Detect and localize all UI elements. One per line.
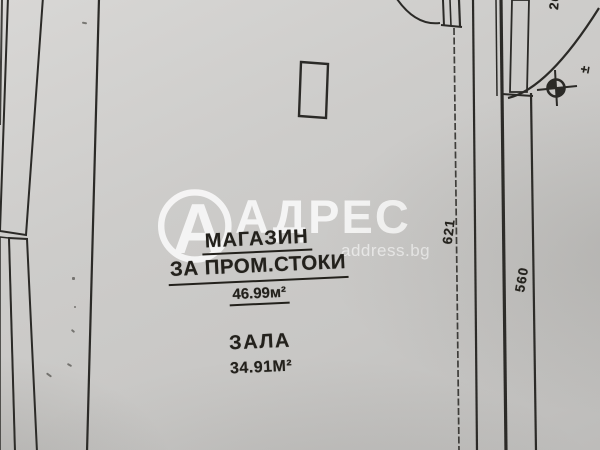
room-label-hall: ЗАЛА 34.91М² [172, 327, 349, 380]
benchmark-icon [537, 70, 577, 106]
dimension-621: 621 [440, 218, 458, 245]
left-exterior-wall [0, 0, 43, 235]
top-door [397, 0, 462, 27]
shop-area: 46.99м² [229, 283, 289, 306]
room-label-shop: МАГАЗИН ЗА ПРОМ.СТОКИ 46.99м² [146, 223, 369, 310]
floor-plan-photo: А АДРЕС address.bg МАГАЗИН ЗА ПРОМ.СТОКИ… [0, 0, 600, 450]
right-wall-lines [454, 0, 536, 450]
column [299, 62, 328, 118]
paper-speck [72, 277, 75, 280]
dimension-top-partial: 26 [546, 0, 562, 10]
left-storefront-window [0, 237, 37, 450]
left-interior-wall-line [87, 0, 99, 450]
paper-speck [74, 306, 76, 308]
